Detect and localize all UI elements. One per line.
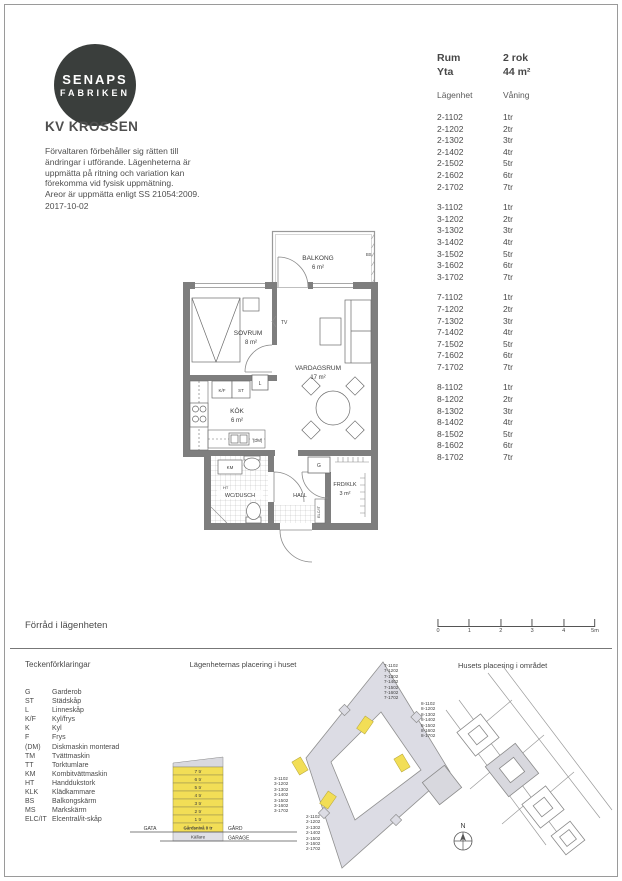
svg-text:4 tr: 4 tr — [195, 793, 202, 799]
table-row: 8-11021tr — [437, 382, 592, 394]
floor-number: 4tr — [503, 147, 513, 157]
floor-number: 3tr — [503, 135, 513, 145]
garage-label: GARAGE — [228, 836, 250, 842]
scale-tick: 2 — [499, 619, 502, 634]
column-floor: Våning — [503, 90, 529, 100]
streets — [446, 665, 612, 845]
stove — [190, 403, 208, 427]
linen-closet: L — [252, 375, 268, 390]
scale-bar: 012345m — [438, 616, 595, 644]
apartment-list-3: 3-11023-12023-13023-14023-15023-16023-17… — [274, 776, 288, 814]
apartment-group-3: 3-11021tr3-12022tr3-13023tr3-14024tr3-15… — [437, 202, 592, 283]
table-row: 8-14024tr — [437, 417, 592, 429]
table-row: 2-17027tr — [437, 182, 592, 194]
logo-text-2: FABRIKEN — [60, 88, 130, 98]
floor-number: 2tr — [503, 214, 513, 224]
livingroom-label: VARDAGSRUM — [295, 365, 341, 372]
floor-number: 3tr — [503, 316, 513, 326]
towel-dryer-label: HT — [223, 485, 229, 490]
table-row: 2-16026tr — [437, 170, 592, 182]
floor-number: 4tr — [503, 327, 513, 337]
bathroom-sink — [244, 456, 260, 470]
apartment-number: 8-1502 — [437, 429, 463, 439]
apartment-number: 2-1102 — [437, 112, 463, 122]
table-row: 7-14024tr — [437, 327, 592, 339]
apartment-id: 3-1702 — [274, 808, 288, 813]
svg-text:5 tr: 5 tr — [195, 785, 202, 791]
legend-abbr: HT — [25, 779, 52, 788]
legend-abbr: TM — [25, 752, 52, 761]
apartment-number: 7-1102 — [437, 292, 463, 302]
floor-number: 6tr — [503, 440, 513, 450]
table-row: 8-17027tr — [437, 452, 592, 464]
apartment-id: 8-1702 — [421, 733, 435, 738]
apartment-id: 8-1402 — [421, 717, 435, 722]
washer: KM — [218, 460, 242, 474]
storage-area: 3 m² — [340, 491, 351, 497]
scale-tick-label: 1 — [468, 628, 471, 634]
legend-abbr: TT — [25, 761, 52, 770]
scale-tick: 4 — [562, 619, 565, 634]
table-row: 2-13023tr — [437, 135, 592, 147]
apartment-number: 3-1202 — [437, 214, 463, 224]
apartment-id: 2-1402 — [306, 830, 320, 835]
svg-text:ELC/IT: ELC/IT — [317, 505, 321, 517]
building-footprint — [295, 650, 465, 875]
disclaimer-line: ändringar i utförande. Lägenheterna är — [45, 157, 200, 168]
legend-abbr: K/F — [25, 715, 52, 724]
hall-label: HALL — [293, 493, 307, 499]
table-row: 3-16026tr — [437, 260, 592, 272]
svg-text:ST: ST — [238, 388, 244, 393]
scale-tick-label: 0 — [436, 628, 439, 634]
apartment-number: 3-1502 — [437, 249, 463, 259]
svg-text:Gårdsnivå 0 tr: Gårdsnivå 0 tr — [184, 826, 213, 831]
svg-text:L: L — [259, 381, 262, 387]
apartment-number: 2-1302 — [437, 135, 463, 145]
legend-desc: Kyl/frys — [52, 715, 165, 724]
legend-item: K/FKyl/frys — [25, 715, 165, 724]
scale-tick: 0 — [436, 619, 439, 634]
apartment-id: 7-1402 — [384, 679, 398, 684]
north-compass: N — [454, 823, 472, 850]
area-label: Yta — [437, 66, 453, 78]
table-row: 8-15025tr — [437, 429, 592, 441]
north-label: N — [460, 823, 465, 830]
kitchen-area: 6 m² — [231, 418, 243, 424]
floor-number: 6tr — [503, 260, 513, 270]
balcony-room-label: BALKONG — [302, 255, 333, 262]
legend-desc: Städskåp — [52, 697, 165, 706]
fridge-freezer: K/F — [212, 381, 232, 398]
floor-number: 1tr — [503, 202, 513, 212]
floor-number: 2tr — [503, 394, 513, 404]
table-row: 2-11021tr — [437, 112, 592, 124]
table-row: 7-15025tr — [437, 339, 592, 351]
sofa — [345, 300, 371, 363]
scale-tick: 5m — [591, 619, 599, 634]
floor-number: 1tr — [503, 292, 513, 302]
apartment-number: 2-1202 — [437, 124, 463, 134]
disclaimer-line: uppmätta på ritning och variation kan — [45, 168, 200, 179]
legend-item: STStädskåp — [25, 697, 165, 706]
svg-text:KM: KM — [227, 465, 234, 470]
legend-desc: Frys — [52, 733, 165, 742]
svg-text:6 tr: 6 tr — [195, 777, 202, 783]
apartment-id: 7-1702 — [384, 695, 398, 700]
yard-label: GÅRD — [228, 825, 243, 832]
legend-abbr: BS — [25, 797, 52, 806]
legend-desc: Linneskåp — [52, 706, 165, 715]
area-value: 44 m² — [503, 66, 530, 78]
rooms-label: Rum — [437, 52, 460, 64]
apartment-number: 8-1702 — [437, 452, 463, 462]
legend-desc: Garderob — [52, 688, 165, 697]
legend-abbr: KLK — [25, 788, 52, 797]
legend-title: Teckenförklaringar — [25, 660, 165, 669]
table-row: 3-11021tr — [437, 202, 592, 214]
floor-number: 5tr — [503, 158, 513, 168]
table-row: 3-15025tr — [437, 249, 592, 261]
apartment-number: 7-1302 — [437, 316, 463, 326]
street-label: GATA — [144, 826, 158, 832]
apartment-number: 3-1102 — [437, 202, 463, 212]
floor-number: 7tr — [503, 182, 513, 192]
legend-abbr: G — [25, 688, 52, 697]
floor-number: 7tr — [503, 362, 513, 372]
wardrobe: G — [308, 457, 330, 473]
section-divider — [10, 648, 612, 649]
disclaimer-line: Areor är uppmätta enligt SS 21054:2009. — [45, 189, 200, 200]
svg-text:G: G — [317, 463, 321, 469]
table-row: 3-14024tr — [437, 237, 592, 249]
table-row: 2-14024tr — [437, 147, 592, 159]
apartment-number: 7-1702 — [437, 362, 463, 372]
table-row: 8-13023tr — [437, 406, 592, 418]
floor-number: 6tr — [503, 350, 513, 360]
apartment-id: 2-1702 — [306, 846, 320, 851]
disclaimer-line: Förvaltaren förbehåller sig rätten till — [45, 146, 200, 157]
disclaimer-line: förekomma vid fysisk uppmätning. — [45, 178, 200, 189]
apartment-number: 8-1602 — [437, 440, 463, 450]
svg-text:TV: TV — [281, 320, 288, 326]
rooms-row: Rum 2 rok — [437, 52, 592, 66]
apartment-number: 3-1402 — [437, 237, 463, 247]
apartment-group-7: 7-11021tr7-12022tr7-13023tr7-14024tr7-15… — [437, 292, 592, 373]
scale-tick: 3 — [531, 619, 534, 634]
table-row: 7-11021tr — [437, 292, 592, 304]
kitchen-label: KÖK — [230, 407, 244, 415]
apartment-group-8: 8-11021tr8-12022tr8-13023tr8-14024tr8-15… — [437, 382, 592, 463]
logo-text-1: SENAPS — [62, 72, 127, 87]
legend-abbr: MS — [25, 806, 52, 815]
table-row: 8-16026tr — [437, 440, 592, 452]
legend-item: LLinneskåp — [25, 706, 165, 715]
electrical-cabinet: ELC/IT — [315, 499, 325, 523]
disclaimer-text: Förvaltaren förbehåller sig rätten tillä… — [45, 146, 200, 200]
apartment-list-7: 7-11027-12027-13027-14027-15027-16027-17… — [384, 663, 398, 701]
floor-number: 5tr — [503, 249, 513, 259]
table-row: 7-12022tr — [437, 304, 592, 316]
apartment-number: 8-1302 — [437, 406, 463, 416]
scale-tick-label: 4 — [562, 628, 565, 634]
side-table — [320, 318, 341, 345]
bathroom-label: WC/DUSCH — [225, 493, 255, 499]
legend-abbr: K — [25, 724, 52, 733]
floor-number: 3tr — [503, 225, 513, 235]
apartment-number: 7-1402 — [437, 327, 463, 337]
legend-item: FFrys — [25, 733, 165, 742]
legend-abbr: ELC/IT — [25, 815, 52, 824]
apartment-number: 3-1302 — [437, 225, 463, 235]
apartment-info-table: Rum 2 rok Yta 44 m² Lägenhet Våning 2-11… — [437, 52, 592, 464]
balcony: BS BALKONG 6 m² — [273, 232, 375, 288]
floor-number: 4tr — [503, 237, 513, 247]
apartment-list-8: 8-11028-12028-13028-14028-15028-16028-17… — [421, 701, 435, 739]
floor-number: 3tr — [503, 406, 513, 416]
svg-text:7 tr: 7 tr — [195, 769, 202, 775]
apartment-number: 8-1402 — [437, 417, 463, 427]
apartment-id: 3-1402 — [274, 792, 288, 797]
apartment-number: 2-1402 — [437, 147, 463, 157]
svg-text:2 tr: 2 tr — [195, 809, 202, 815]
legend-abbr: F — [25, 733, 52, 742]
floor-number: 4tr — [503, 417, 513, 427]
balcony-area-label: 6 m² — [312, 265, 324, 271]
senapsfabriken-logo: SENAPS FABRIKEN — [54, 44, 136, 126]
table-row: 8-12022tr — [437, 394, 592, 406]
table-header: Lägenhet Våning — [437, 90, 592, 103]
apartment-number: 2-1502 — [437, 158, 463, 168]
table-row: 7-17027tr — [437, 362, 592, 374]
table-row: 3-13023tr — [437, 225, 592, 237]
bedroom-label: SOVRUM — [234, 330, 263, 337]
svg-text:1 tr: 1 tr — [195, 817, 202, 823]
table-row: 7-16026tr — [437, 350, 592, 362]
floor-plan: BS BALKONG 6 m² — [165, 215, 405, 575]
legend-abbr: ST — [25, 697, 52, 706]
legend-abbr: L — [25, 706, 52, 715]
roof — [173, 757, 223, 767]
apartment-number: 3-1702 — [437, 272, 463, 282]
toilet — [246, 503, 261, 524]
legend-abbr: (DM) — [25, 743, 52, 752]
document-date: 2017-10-02 — [45, 201, 88, 211]
rooms-value: 2 rok — [503, 52, 528, 64]
apartment-list-2: 2-11022-12022-13022-14022-15022-16022-17… — [306, 814, 320, 852]
floor-number: 1tr — [503, 382, 513, 392]
scale-tick-label: 5m — [591, 628, 599, 634]
table-row: 3-12022tr — [437, 214, 592, 226]
scale-tick: 1 — [468, 619, 471, 634]
floor-number: 7tr — [503, 452, 513, 462]
legend-abbr: KM — [25, 770, 52, 779]
storage-label: FRD/KLK — [333, 482, 357, 488]
table-row: 7-13023tr — [437, 316, 592, 328]
floor-number: 1tr — [503, 112, 513, 122]
apartment-number: 2-1602 — [437, 170, 463, 180]
table-row: 2-15025tr — [437, 158, 592, 170]
scale-tick-label: 3 — [531, 628, 534, 634]
apartment-number: 2-1702 — [437, 182, 463, 192]
cleaning-closet: ST — [232, 381, 250, 398]
apartment-number: 7-1602 — [437, 350, 463, 360]
area-row: Yta 44 m² — [437, 66, 592, 80]
apartment-number: 8-1202 — [437, 394, 463, 404]
apartment-number: 3-1602 — [437, 260, 463, 270]
scale-line — [438, 626, 595, 627]
livingroom-area: 17 m² — [310, 375, 325, 381]
scale-tick-label: 2 — [499, 628, 502, 634]
floor-number: 7tr — [503, 272, 513, 282]
floor-number: 5tr — [503, 429, 513, 439]
page-title: KV KROSSEN — [45, 119, 138, 134]
svg-text:Källare: Källare — [191, 835, 206, 840]
svg-text:K/F: K/F — [218, 388, 225, 393]
floor-number: 5tr — [503, 339, 513, 349]
floor-number: 2tr — [503, 124, 513, 134]
apartment-group-2: 2-11021tr2-12022tr2-13023tr2-14024tr2-15… — [437, 112, 592, 193]
floor-number: 2tr — [503, 304, 513, 314]
apartment-number: 7-1202 — [437, 304, 463, 314]
apartment-number: 8-1102 — [437, 382, 463, 392]
legend-item: KKyl — [25, 724, 165, 733]
dishwasher-label: (DM) — [253, 438, 263, 443]
apartment-number: 7-1502 — [437, 339, 463, 349]
site-plan: N — [450, 672, 618, 872]
svg-text:3 tr: 3 tr — [195, 801, 202, 807]
table-row: 3-17027tr — [437, 272, 592, 284]
bedroom-area: 8 m² — [245, 340, 257, 346]
column-apartment: Lägenhet — [437, 90, 472, 100]
floor-number: 6tr — [503, 170, 513, 180]
kitchen-sink — [229, 433, 249, 445]
storage-note: Förråd i lägenheten — [25, 620, 107, 631]
legend-desc: Kyl — [52, 724, 165, 733]
building-ring — [306, 662, 450, 868]
balcony-screen-label: BS — [366, 252, 372, 257]
legend-item: GGarderob — [25, 688, 165, 697]
table-row: 2-12022tr — [437, 124, 592, 136]
